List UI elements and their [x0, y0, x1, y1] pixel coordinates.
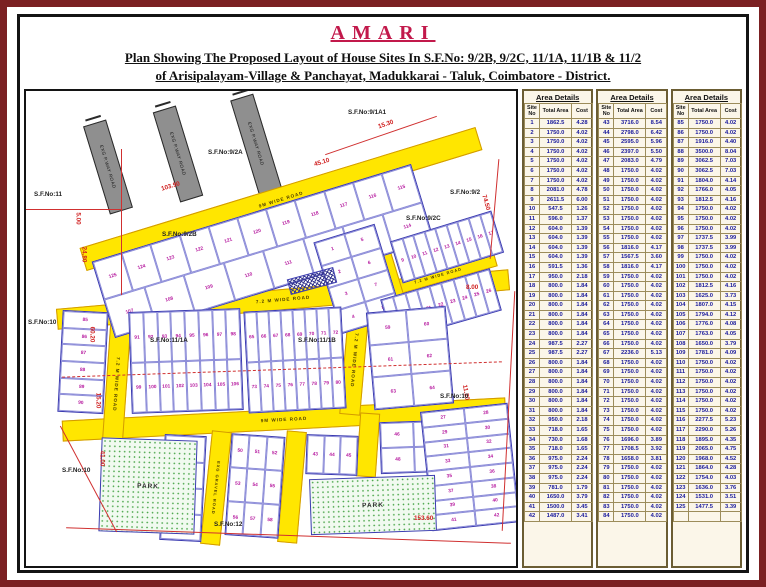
road-label: 7.2 M WIDE ROAD	[350, 333, 360, 388]
table-row: 401650.03.79	[525, 493, 593, 503]
table-row: 14604.01.39	[525, 243, 593, 253]
table-row: 18800.01.84	[525, 282, 593, 292]
table-row	[673, 512, 741, 522]
park-label: PARK	[137, 482, 159, 490]
table-row: 561816.04.17	[599, 243, 667, 253]
table-row: 951750.04.02	[673, 214, 741, 224]
table-row: 541750.04.02	[599, 224, 667, 234]
table-row: 821750.04.02	[599, 493, 667, 503]
table-title: Area Details	[598, 91, 665, 103]
table-row: 511750.04.02	[599, 195, 667, 205]
sf-label: S.F.No:9/2	[450, 189, 480, 196]
table-row: 25987.52.27	[525, 349, 593, 359]
table-row: 17950.02.18	[525, 272, 593, 282]
table-row: 34730.01.68	[525, 435, 593, 445]
table-row: 26800.01.84	[525, 358, 593, 368]
plan-sheet: AMARI Plan Showing The Proposed Layout o…	[0, 0, 766, 587]
plot-number: 72	[328, 308, 343, 359]
plan-header: AMARI Plan Showing The Proposed Layout o…	[24, 19, 742, 89]
title-line-2: of Arisipalayam-Village & Panchayat, Mad…	[24, 68, 742, 84]
table-row: 1051794.04.12	[673, 310, 741, 320]
main-area: EXG P.WAY ROAD EXG P.WAY ROAD EXG P.WAY …	[24, 89, 742, 568]
table-row: 39781.01.79	[525, 483, 593, 493]
table-row: 741750.04.02	[599, 416, 667, 426]
plot-number: 48	[381, 447, 415, 473]
table-row: 961750.04.02	[673, 224, 741, 234]
table-row: 11596.01.37	[525, 214, 593, 224]
plot-block: 919293949596979899100101102103104105106	[128, 308, 243, 414]
table-row: 31750.04.02	[525, 138, 593, 148]
table-row: 1101750.04.02	[673, 358, 741, 368]
table-row: 711750.04.02	[599, 387, 667, 397]
table-row: 1031625.03.73	[673, 291, 741, 301]
table-title: Area Details	[673, 91, 740, 103]
table-row: 61750.04.02	[525, 166, 593, 176]
dimension-label: 15.30	[377, 119, 394, 131]
plot-number: 46	[380, 422, 414, 448]
title-line-1: Plan Showing The Proposed Layout of Hous…	[24, 50, 742, 66]
area-table-3: Area Details Site No Total Area Cost 851…	[671, 89, 742, 568]
table-row: 1151750.04.02	[673, 406, 741, 416]
table-row: 911804.04.14	[673, 176, 741, 186]
table-row: 1192065.04.75	[673, 445, 741, 455]
table-row: 36975.02.24	[525, 454, 593, 464]
road-label: EXG P.WAY ROAD	[169, 132, 187, 177]
table-row: 781658.03.81	[599, 454, 667, 464]
table-row: 22800.01.84	[525, 320, 593, 330]
table-row: 681750.04.02	[599, 358, 667, 368]
table-row: 35718.01.65	[525, 445, 593, 455]
sf-label: S.F.No:11	[34, 191, 62, 198]
plot-number: 42	[475, 507, 518, 526]
plot-number: 45	[340, 436, 358, 475]
road-label: 9M WIDE ROAD	[261, 416, 308, 423]
table-row: 1231636.03.76	[673, 483, 741, 493]
area-tables-panel: Area Details Site No Total Area Cost 118…	[522, 89, 742, 568]
plot-number: 43	[306, 435, 324, 474]
table-row: 82081.04.78	[525, 186, 593, 196]
table-row: 1141750.04.02	[673, 397, 741, 407]
table-row: 571567.53.60	[599, 253, 667, 263]
table-row: 20800.01.84	[525, 301, 593, 311]
table-row: 30800.01.84	[525, 397, 593, 407]
table-row: 641750.04.02	[599, 320, 667, 330]
table-row: 1172290.05.26	[673, 426, 741, 436]
table-row: 421487.03.41	[525, 512, 593, 522]
park-area: PARK	[98, 437, 197, 534]
plot-number: 62	[409, 339, 451, 374]
table-row: 1061776.04.08	[673, 320, 741, 330]
sf-label: S.F.No:10	[28, 319, 56, 326]
table-row: 981737.53.99	[673, 243, 741, 253]
table-row: 581816.04.17	[599, 262, 667, 272]
table-row: 1021812.54.16	[673, 282, 741, 292]
sf-label: S.F.No:11/1B	[298, 337, 336, 344]
table-row: 452595.05.96	[599, 138, 667, 148]
table-row: 21800.01.84	[525, 310, 593, 320]
table-row: 721750.04.02	[599, 397, 667, 407]
col-cost: Cost	[646, 104, 667, 119]
table-row: 1181895.04.35	[673, 435, 741, 445]
sf-label: S.F.No:11/1A	[150, 337, 188, 344]
table-row: 71750.04.02	[525, 176, 593, 186]
table-row: 1121750.04.02	[673, 378, 741, 388]
boundary-line	[121, 149, 122, 295]
dimension-label: 60.20	[88, 327, 95, 343]
table-row: 462397.05.50	[599, 147, 667, 157]
table-row: 591750.04.02	[599, 272, 667, 282]
park-label: PARK	[362, 501, 384, 509]
table-row: 1001750.04.02	[673, 262, 741, 272]
col-total-area: Total Area	[688, 104, 720, 119]
area-table-2: Area Details Site No Total Area Cost 433…	[596, 89, 667, 568]
table-row: 442798.06.42	[599, 128, 667, 138]
table-row: 10547.51.26	[525, 205, 593, 215]
col-site-no: Site No	[599, 104, 614, 119]
table-row: 771708.53.92	[599, 445, 667, 455]
plot-number: 61	[370, 342, 412, 377]
existing-way-road: EXG P.WAY ROAD	[83, 120, 133, 215]
table-row: 621750.04.02	[599, 301, 667, 311]
table-row: 991750.04.02	[673, 253, 741, 263]
table-row: 931812.54.16	[673, 195, 741, 205]
col-site-no: Site No	[673, 104, 688, 119]
dimension-label: 74.50	[480, 194, 491, 211]
table-row: 601750.04.02	[599, 282, 667, 292]
table-row: 37975.02.24	[525, 464, 593, 474]
plot-number: 55	[262, 470, 282, 504]
table-row: 13604.01.39	[525, 234, 593, 244]
table-row: 1162277.55.23	[673, 416, 741, 426]
table-row: 831750.04.02	[599, 502, 667, 512]
sf-label: S.F.No:10	[440, 393, 468, 400]
table-row: 1201968.04.52	[673, 454, 741, 464]
table-row: 28800.01.84	[525, 378, 593, 388]
table-row: 893062.57.03	[673, 157, 741, 167]
table-row: 851750.04.02	[673, 119, 741, 129]
sf-label: S.F.No:9/2B	[162, 231, 197, 238]
table-row: 631750.04.02	[599, 310, 667, 320]
dimension-label: 41.00	[98, 451, 105, 467]
sf-label: S.F.No:12	[214, 521, 242, 528]
table-row: 1221754.04.03	[673, 473, 741, 483]
table-title: Area Details	[524, 91, 591, 103]
table-row: 16591.51.36	[525, 262, 593, 272]
table-row: 21750.04.02	[525, 128, 593, 138]
dimension-label: 8.00	[466, 284, 478, 291]
dimension-label: 153.60	[414, 515, 433, 522]
table-row: 861750.04.02	[673, 128, 741, 138]
table-row: 472083.04.79	[599, 157, 667, 167]
existing-way-road: EXG P.WAY ROAD	[230, 94, 282, 195]
plot-number: 106	[227, 359, 242, 409]
table-row: 481750.04.02	[599, 166, 667, 176]
table-row: 921766.04.05	[673, 186, 741, 196]
plot-number: 63	[373, 374, 415, 409]
plot-number: 60	[406, 307, 448, 342]
table-row: 24987.52.27	[525, 339, 593, 349]
dimension-label: 45.10	[313, 157, 330, 168]
table-row: 51750.04.02	[525, 157, 593, 167]
table-row: 411500.03.45	[525, 502, 593, 512]
table-row: 903062.57.03	[673, 166, 741, 176]
table-row: 501750.04.02	[599, 186, 667, 196]
table-row: 19800.01.84	[525, 291, 593, 301]
plot-number: 80	[331, 357, 346, 408]
table-row: 791750.04.02	[599, 464, 667, 474]
park-area: PARK	[309, 475, 437, 535]
table-row: 971737.53.99	[673, 234, 741, 244]
plot-block: 65666768697071727374757677787980	[243, 307, 346, 414]
table-row: 731750.04.02	[599, 406, 667, 416]
table-row: 691750.04.02	[599, 368, 667, 378]
table-row: 1071763.04.05	[673, 330, 741, 340]
table-row: 811750.04.02	[599, 483, 667, 493]
col-site-no: Site No	[525, 104, 540, 119]
table-row: 661750.04.02	[599, 339, 667, 349]
boundary-line	[26, 209, 122, 210]
plot-number: 98	[225, 309, 240, 359]
col-cost: Cost	[720, 104, 741, 119]
plot-block: 434445	[305, 434, 358, 476]
table-row: 801750.04.02	[599, 473, 667, 483]
table-row: 751750.04.02	[599, 426, 667, 436]
dimension-label: 15.20	[94, 393, 101, 409]
plot-number: 44	[323, 436, 341, 475]
table-row: 521750.04.02	[599, 205, 667, 215]
table-row: 841750.04.02	[599, 512, 667, 522]
col-total-area: Total Area	[614, 104, 646, 119]
col-cost: Cost	[572, 104, 593, 119]
table-row: 15604.01.39	[525, 253, 593, 263]
road-vert	[356, 412, 380, 477]
road-label: EXG P.WAY ROAD	[247, 122, 265, 167]
layout-plan-map: EXG P.WAY ROAD EXG P.WAY ROAD EXG P.WAY …	[24, 89, 518, 568]
plot-number: 52	[265, 437, 285, 471]
table-row: 701750.04.02	[599, 378, 667, 388]
col-total-area: Total Area	[540, 104, 572, 119]
plot-number: 41	[432, 511, 476, 530]
sf-label: S.F.No:10	[62, 467, 90, 474]
table-row: 611750.04.02	[599, 291, 667, 301]
table-row: 1091781.04.09	[673, 349, 741, 359]
dimension-label: 24.80	[80, 247, 87, 263]
table-row: 41750.04.02	[525, 147, 593, 157]
content-frame: AMARI Plan Showing The Proposed Layout o…	[17, 14, 749, 573]
table-row: 27800.01.84	[525, 368, 593, 378]
table-row: 883500.08.04	[673, 147, 741, 157]
table-row: 31800.01.84	[525, 406, 593, 416]
sf-label: S.F.No:9/1A1	[348, 109, 386, 116]
table-row: 941750.04.02	[673, 205, 741, 215]
table-row: 29800.01.84	[525, 387, 593, 397]
sf-label: S.F.No:9/2C	[406, 215, 441, 222]
plot-number: 64	[411, 371, 453, 406]
sf-label: S.F.No:9/2A	[208, 149, 243, 156]
plot-number: 58	[260, 503, 280, 537]
brand-title: AMARI	[331, 22, 436, 45]
table-row: 651750.04.02	[599, 330, 667, 340]
table-row: 32950.02.18	[525, 416, 593, 426]
table-row: 871916.04.40	[673, 138, 741, 148]
table-row: 1241531.03.51	[673, 493, 741, 503]
table-row: 1211864.04.28	[673, 464, 741, 474]
table-row: 38975.02.24	[525, 473, 593, 483]
table-row: 1011750.04.02	[673, 272, 741, 282]
table-row: 1041807.04.15	[673, 301, 741, 311]
table-row: 1081650.03.79	[673, 339, 741, 349]
road-label: 7.2 M WIDE ROAD	[112, 357, 121, 412]
table-row: 33718.01.65	[525, 426, 593, 436]
table-row: 92611.56.00	[525, 195, 593, 205]
table-row: 23800.01.84	[525, 330, 593, 340]
table-row: 12604.01.39	[525, 224, 593, 234]
table-row: 1131750.04.02	[673, 387, 741, 397]
table-row: 761696.03.89	[599, 435, 667, 445]
road-label: EXG P.WAY ROAD	[99, 145, 117, 190]
plot-number: 59	[367, 310, 409, 345]
table-row: 491750.04.02	[599, 176, 667, 186]
table-row: 1251477.53.39	[673, 502, 741, 512]
road-label: EXG GRAVEL ROAD	[211, 461, 222, 515]
table-row: 672236.05.13	[599, 349, 667, 359]
road-label: 7.2 M WIDE ROAD	[256, 295, 311, 305]
table-row: 531750.04.02	[599, 214, 667, 224]
table-row: 433716.08.54	[599, 119, 667, 129]
table-row: 1111750.04.02	[673, 368, 741, 378]
dimension-label: 5.00	[75, 212, 82, 224]
area-table-1: Area Details Site No Total Area Cost 118…	[522, 89, 593, 568]
table-row: 551750.04.02	[599, 234, 667, 244]
table-row: 11862.54.28	[525, 119, 593, 129]
